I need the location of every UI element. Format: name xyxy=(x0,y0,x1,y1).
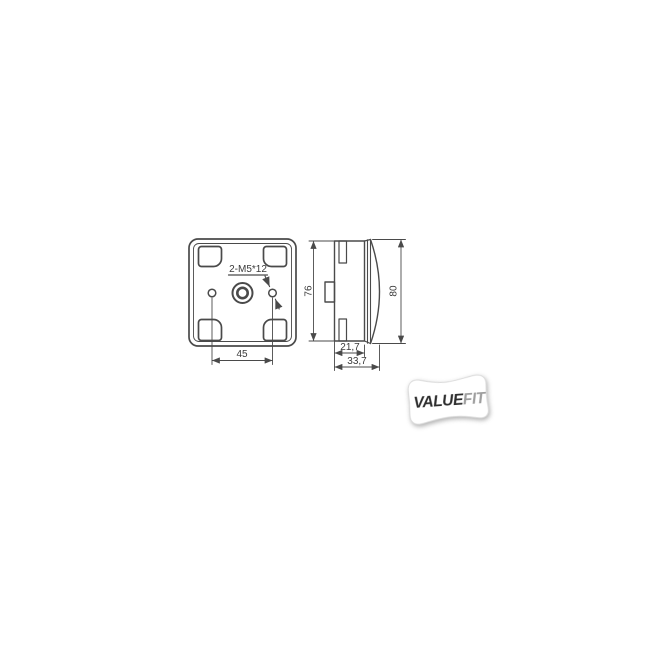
housing-top-tab xyxy=(339,241,347,263)
cable-entry-outer-circle xyxy=(233,283,253,303)
corner-cutout-bottom-left xyxy=(199,320,222,341)
valuefit-badge: VALUEFIT xyxy=(407,374,489,424)
lamp-dimension-drawing: 2-M5*12 45 76 80 21,7 33,7 VALUEFIT xyxy=(0,0,669,669)
corner-cutout-bottom-right xyxy=(264,320,287,341)
technical-drawing-canvas: 2-M5*12 45 76 80 21,7 33,7 VALUEFIT xyxy=(0,0,669,669)
housing-bottom-tab xyxy=(339,319,347,341)
corner-cutout-top-right xyxy=(264,247,287,267)
dimension-labels: 2-M5*12 45 76 80 21,7 33,7 xyxy=(229,264,399,367)
dimension-label-33-7: 33,7 xyxy=(347,356,367,367)
callout-leader-arrow-upper xyxy=(265,276,270,287)
rear-connector xyxy=(325,282,335,302)
lens-curved-face xyxy=(371,240,380,344)
housing-outer-outline xyxy=(189,239,296,346)
front-view xyxy=(189,239,296,365)
dimension-label-45: 45 xyxy=(236,349,248,360)
dimension-label-76: 76 xyxy=(304,285,315,297)
dimension-label-80: 80 xyxy=(389,285,400,297)
screw-callout-label: 2-M5*12 xyxy=(229,264,267,275)
fit-text: FIT xyxy=(462,390,487,409)
corner-cutout-top-left xyxy=(199,247,222,267)
dimension-label-21-7: 21,7 xyxy=(340,342,360,353)
callout-leader-arrow-lower xyxy=(275,299,279,309)
cable-entry-inner-circle xyxy=(237,288,247,298)
value-text: VALUE xyxy=(413,391,465,411)
mounting-hole-right xyxy=(269,289,277,297)
mounting-hole-left xyxy=(208,289,216,297)
